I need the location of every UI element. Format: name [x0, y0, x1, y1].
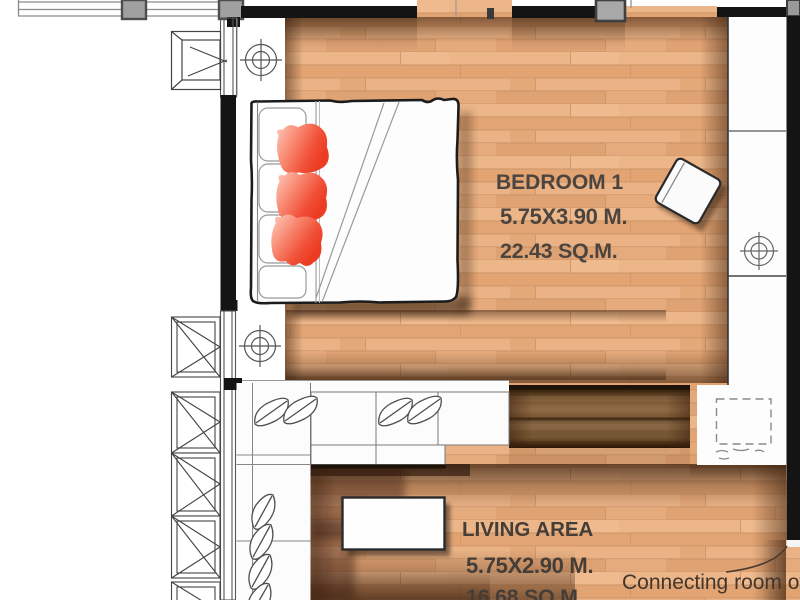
svg-text:5.75X3.90 M.: 5.75X3.90 M. [500, 204, 627, 229]
svg-text:16.68 SQ.M.: 16.68 SQ.M. [466, 585, 583, 600]
svg-text:5.75X2.90 M.: 5.75X2.90 M. [466, 553, 593, 578]
svg-text:22.43 SQ.M.: 22.43 SQ.M. [500, 239, 617, 263]
svg-text:BEDROOM 1: BEDROOM 1 [496, 171, 624, 194]
svg-text:LIVING AREA: LIVING AREA [462, 518, 594, 541]
svg-text:Connecting room of: Connecting room of [622, 571, 800, 594]
